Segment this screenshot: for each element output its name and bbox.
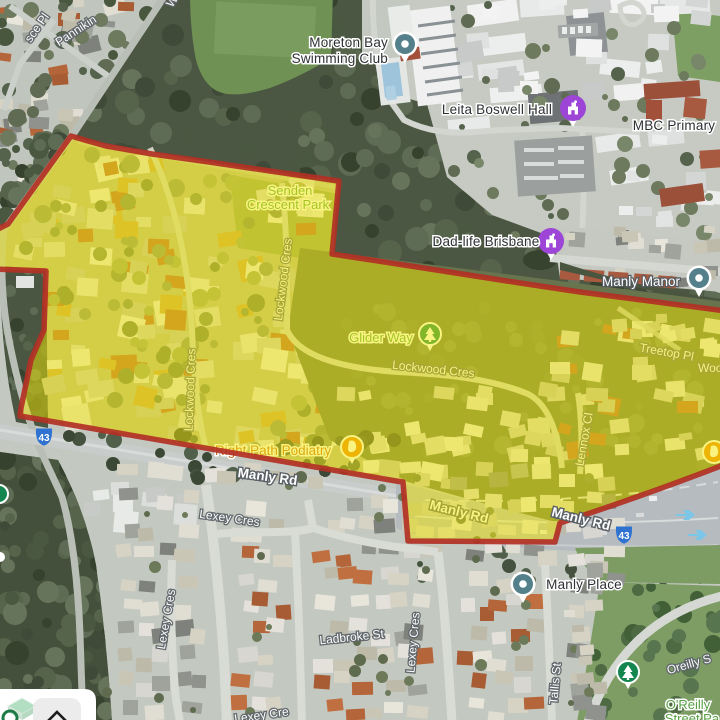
svg-text:O'Reilly: O'Reilly <box>666 697 711 712</box>
svg-text:Moreton Bay: Moreton Bay <box>309 35 388 50</box>
svg-text:Swimming Club: Swimming Club <box>292 51 388 66</box>
svg-text:Manly Place: Manly Place <box>546 577 622 592</box>
svg-text:43: 43 <box>38 433 50 444</box>
svg-text:Street Pa: Street Pa <box>665 711 720 720</box>
svg-text:43: 43 <box>618 531 630 542</box>
svg-text:Leita Boswell Hall: Leita Boswell Hall <box>442 102 552 117</box>
svg-text:Manly Manor: Manly Manor <box>602 274 681 289</box>
svg-text:MBC Primary: MBC Primary <box>633 118 715 133</box>
svg-text:Dad-life Brisbane: Dad-life Brisbane <box>433 234 540 249</box>
